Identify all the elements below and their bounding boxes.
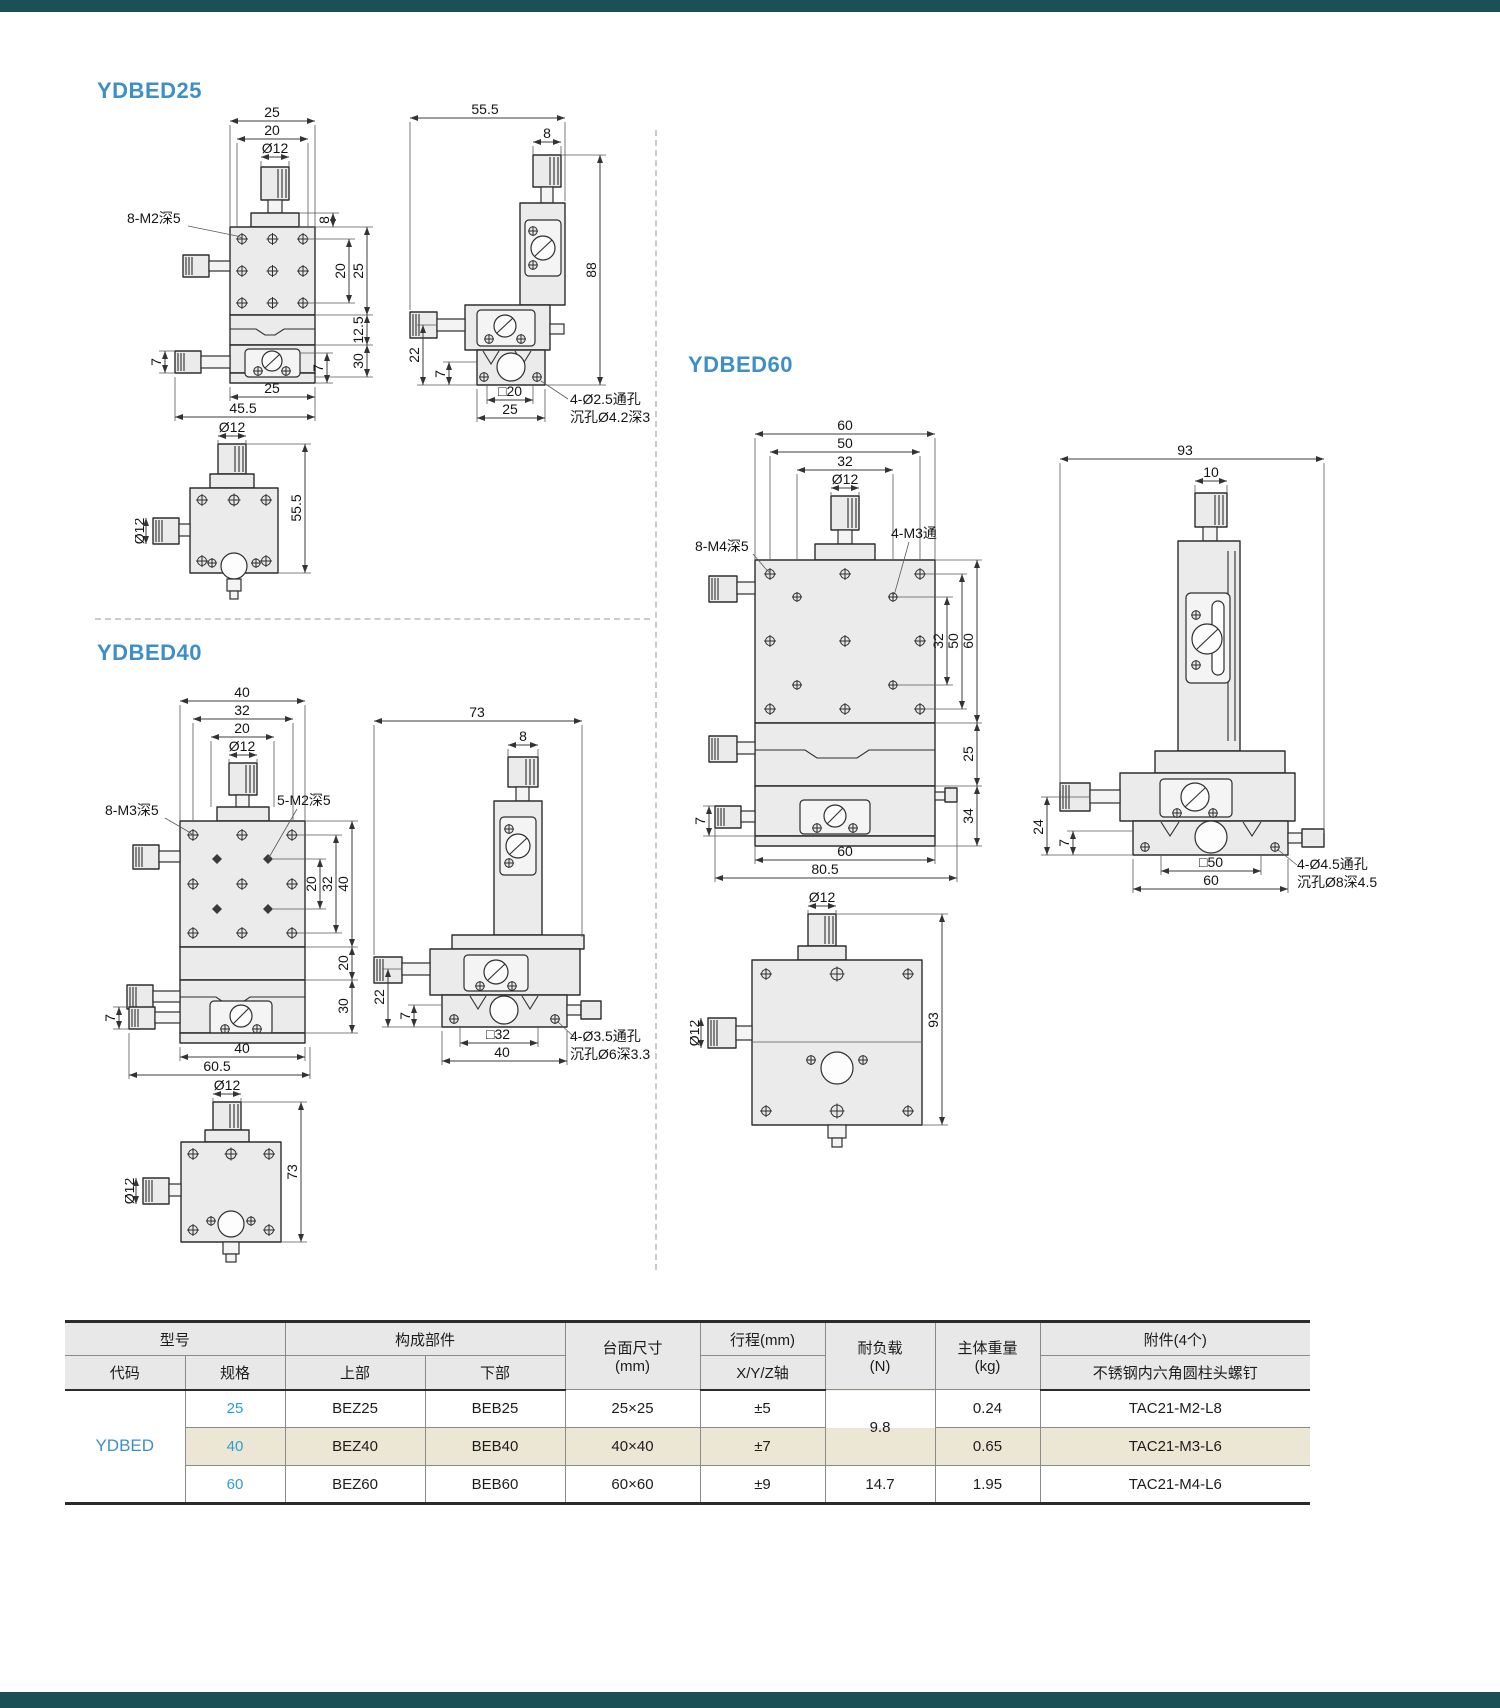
- dim-label: 20: [332, 263, 348, 279]
- cell-upper: BEZ25: [285, 1390, 425, 1428]
- dim-label: 20: [335, 955, 351, 971]
- cell-accessory: TAC21-M2-L8: [1040, 1390, 1310, 1428]
- header-weight-line1: 主体重量: [942, 1337, 1034, 1358]
- spec-table: 型号 构成部件 台面尺寸 (mm) 行程(mm) 耐负载 (N) 主体重量 (k…: [65, 1320, 1310, 1505]
- ydbed60-front-view: 60 50 32 Ø12 8-M4深5 4-M3通 32 50 60 25 34…: [695, 418, 985, 888]
- dim-label: Ø12: [809, 890, 836, 905]
- dim-label: 25: [502, 401, 518, 417]
- dim-label: 93: [1177, 443, 1193, 458]
- dim-label: 25: [350, 263, 366, 279]
- dim-label: 7: [105, 1014, 118, 1022]
- ydbed25-top-view: Ø12 Ø12 55.5: [135, 420, 335, 615]
- dim-label: Ø12: [214, 1078, 241, 1093]
- cell-accessory: TAC21-M4-L6: [1040, 1466, 1310, 1504]
- cell-lower: BEB60: [425, 1466, 565, 1504]
- dim-label: 22: [371, 989, 387, 1005]
- header-weight: 主体重量 (kg): [935, 1322, 1040, 1390]
- ydbed40-top-view: Ø12 Ø12 73: [125, 1078, 335, 1278]
- cell-surface: 25×25: [565, 1390, 700, 1428]
- hole-note: 4-Ø3.5通孔: [570, 1028, 641, 1044]
- section-title-ydbed40: YDBED40: [97, 640, 202, 666]
- cell-lower: BEB25: [425, 1390, 565, 1428]
- cell-code: YDBED: [65, 1390, 185, 1504]
- ydbed25-front-view: 25 20 Ø12 8-M2深5 8 20 25 12.5 30 7 7: [125, 105, 375, 425]
- header-components: 构成部件: [285, 1322, 565, 1356]
- dim-label: Ø12: [262, 140, 289, 156]
- thread-note: 8-M2深5: [127, 210, 181, 226]
- dim-label: 34: [960, 808, 976, 824]
- dim-label: 22: [406, 347, 422, 363]
- dim-label: 12.5: [350, 316, 366, 343]
- dim-label: 8: [519, 728, 527, 744]
- dim-label: 20: [264, 122, 280, 138]
- dim-label: 20: [234, 720, 250, 736]
- header-surface-line2: (mm): [572, 1358, 694, 1375]
- header-spec: 规格: [185, 1356, 285, 1390]
- dim-label: Ø12: [229, 738, 256, 754]
- dim-label: 8: [543, 125, 551, 141]
- dim-label: 25: [960, 746, 976, 762]
- cell-spec: 25: [185, 1390, 285, 1428]
- header-accessory-sub: 不锈钢内六角圆柱头螺钉: [1040, 1356, 1310, 1390]
- table-row: 60 BEZ60 BEB60 60×60 ±9 14.7 1.95 TAC21-…: [65, 1466, 1310, 1504]
- ydbed25-side-view: 55.5 8 88 22 7 □20 25 4-Ø2.5通孔 沉孔Ø4.2深3: [365, 100, 665, 430]
- cell-load-shared: 9.8: [825, 1390, 935, 1466]
- section-title-ydbed60: YDBED60: [688, 352, 793, 378]
- dim-label: Ø12: [690, 1020, 702, 1047]
- dim-label: 25: [264, 380, 280, 396]
- hole-note: 沉孔Ø8深4.5: [1297, 874, 1377, 890]
- dim-label: 32: [837, 453, 853, 469]
- table-row: YDBED 25 BEZ25 BEB25 25×25 ±5 9.8 0.24 T…: [65, 1390, 1310, 1428]
- thread-note: 8-M4深5: [695, 538, 749, 554]
- hole-note: 4-Ø4.5通孔: [1297, 856, 1368, 872]
- header-travel-axis: X/Y/Z轴: [700, 1356, 825, 1390]
- cell-spec: 40: [185, 1428, 285, 1466]
- header-lower: 下部: [425, 1356, 565, 1390]
- dim-label: 40: [335, 876, 351, 892]
- cell-surface: 60×60: [565, 1466, 700, 1504]
- cell-lower: BEB40: [425, 1428, 565, 1466]
- dim-label: 88: [583, 262, 599, 278]
- dim-label: 24: [1030, 819, 1046, 835]
- section-title-ydbed25: YDBED25: [97, 78, 202, 104]
- dim-label: 20: [303, 876, 319, 892]
- table-row: 40 BEZ40 BEB40 40×40 ±7 0.65 TAC21-M3-L6: [65, 1428, 1310, 1466]
- dim-label: 7: [310, 364, 326, 372]
- hole-note: 沉孔Ø6深3.3: [570, 1046, 650, 1062]
- part-geometry: [153, 444, 278, 599]
- hole-note: 4-Ø2.5通孔: [570, 391, 641, 407]
- dim-label: 60: [1203, 872, 1219, 888]
- header-load-line2: (N): [832, 1358, 929, 1375]
- dim-label: 60: [837, 843, 853, 859]
- part-geometry: [1060, 493, 1324, 855]
- spec-table-container: 型号 构成部件 台面尺寸 (mm) 行程(mm) 耐负载 (N) 主体重量 (k…: [65, 1320, 1310, 1505]
- cell-weight: 0.24: [935, 1390, 1040, 1428]
- dim-label: 7: [432, 370, 448, 378]
- cell-travel: ±5: [700, 1390, 825, 1428]
- dim-label: 60.5: [203, 1058, 230, 1074]
- dim-label: 55.5: [288, 494, 304, 521]
- dim-label: 93: [925, 1012, 941, 1028]
- cell-travel: ±9: [700, 1466, 825, 1504]
- dim-label: 40: [234, 685, 250, 700]
- dim-label: Ø12: [125, 1178, 137, 1205]
- ydbed60-side-view: 93 10 24 7 □50 60 4-Ø4.5通孔 沉孔Ø8深4.5: [985, 443, 1390, 903]
- ydbed40-front-view: 40 32 20 Ø12 8-M3深5 5-M2深5 20 32 40 20 3…: [105, 685, 370, 1080]
- cell-upper: BEZ60: [285, 1466, 425, 1504]
- cell-spec: 60: [185, 1466, 285, 1504]
- dim-label: 45.5: [229, 400, 256, 416]
- cell-load: 14.7: [825, 1466, 935, 1504]
- dim-label: Ø12: [135, 518, 147, 545]
- dim-label: 55.5: [471, 101, 498, 117]
- dim-label: □50: [1199, 854, 1223, 870]
- cell-surface: 40×40: [565, 1428, 700, 1466]
- dim-label: Ø12: [219, 420, 246, 435]
- part-geometry: [143, 1102, 281, 1262]
- cell-weight: 0.65: [935, 1428, 1040, 1466]
- part-geometry: [708, 914, 922, 1147]
- dim-label: 73: [284, 1164, 300, 1180]
- bottom-bar: [0, 1692, 1500, 1708]
- header-accessory: 附件(4个): [1040, 1322, 1310, 1356]
- cell-upper: BEZ40: [285, 1428, 425, 1466]
- ydbed60-top-view: Ø12 Ø12 93: [690, 890, 970, 1155]
- dim-label: 40: [494, 1044, 510, 1060]
- dim-label: 80.5: [811, 861, 838, 877]
- dim-label: 40: [234, 1040, 250, 1056]
- header-surface: 台面尺寸 (mm): [565, 1322, 700, 1390]
- thread-note: 8-M3深5: [105, 802, 159, 818]
- hole-note: 沉孔Ø4.2深3: [570, 409, 650, 425]
- ydbed40-side-view: 73 8 22 7 □32 40 4-Ø3.5通孔 沉孔Ø6深3.3: [352, 705, 682, 1070]
- cell-accessory: TAC21-M3-L6: [1040, 1428, 1310, 1466]
- part-geometry: [374, 757, 601, 1027]
- header-upper: 上部: [285, 1356, 425, 1390]
- dim-label: 32: [930, 633, 946, 649]
- dim-label: 7: [148, 358, 164, 366]
- header-weight-line2: (kg): [942, 1358, 1034, 1375]
- dim-label: 60: [960, 633, 976, 649]
- catalog-page: YDBED25 YDBED40 YDBED60: [0, 0, 1500, 1708]
- dim-label: 10: [1203, 464, 1219, 480]
- dim-label: 73: [469, 705, 485, 720]
- dim-label: 7: [695, 817, 708, 825]
- header-load-line1: 耐负载: [832, 1337, 929, 1358]
- section-divider-horizontal: [95, 618, 650, 620]
- dim-label: 50: [837, 435, 853, 451]
- dim-label: 8: [316, 216, 332, 224]
- dim-label: 30: [350, 353, 366, 369]
- header-code: 代码: [65, 1356, 185, 1390]
- dim-label: 7: [1056, 839, 1072, 847]
- top-bar: [0, 0, 1500, 12]
- header-model: 型号: [65, 1322, 285, 1356]
- dim-label: 32: [234, 702, 250, 718]
- dim-label: 25: [264, 105, 280, 120]
- dim-label: 60: [837, 418, 853, 433]
- dim-label: 30: [335, 998, 351, 1014]
- header-travel: 行程(mm): [700, 1322, 825, 1356]
- cell-weight: 1.95: [935, 1466, 1040, 1504]
- header-surface-line1: 台面尺寸: [572, 1337, 694, 1358]
- thread-note: 5-M2深5: [277, 792, 331, 808]
- dim-label: 32: [319, 876, 335, 892]
- header-load: 耐负载 (N): [825, 1322, 935, 1390]
- part-geometry: [410, 155, 565, 385]
- dim-label: □32: [486, 1026, 510, 1042]
- thread-note: 4-M3通: [891, 525, 937, 541]
- dim-label: 50: [945, 633, 961, 649]
- dim-label: □20: [498, 383, 522, 399]
- part-geometry: [175, 167, 315, 383]
- dim-label: Ø12: [832, 471, 859, 487]
- dim-label: 7: [397, 1012, 413, 1020]
- cell-travel: ±7: [700, 1428, 825, 1466]
